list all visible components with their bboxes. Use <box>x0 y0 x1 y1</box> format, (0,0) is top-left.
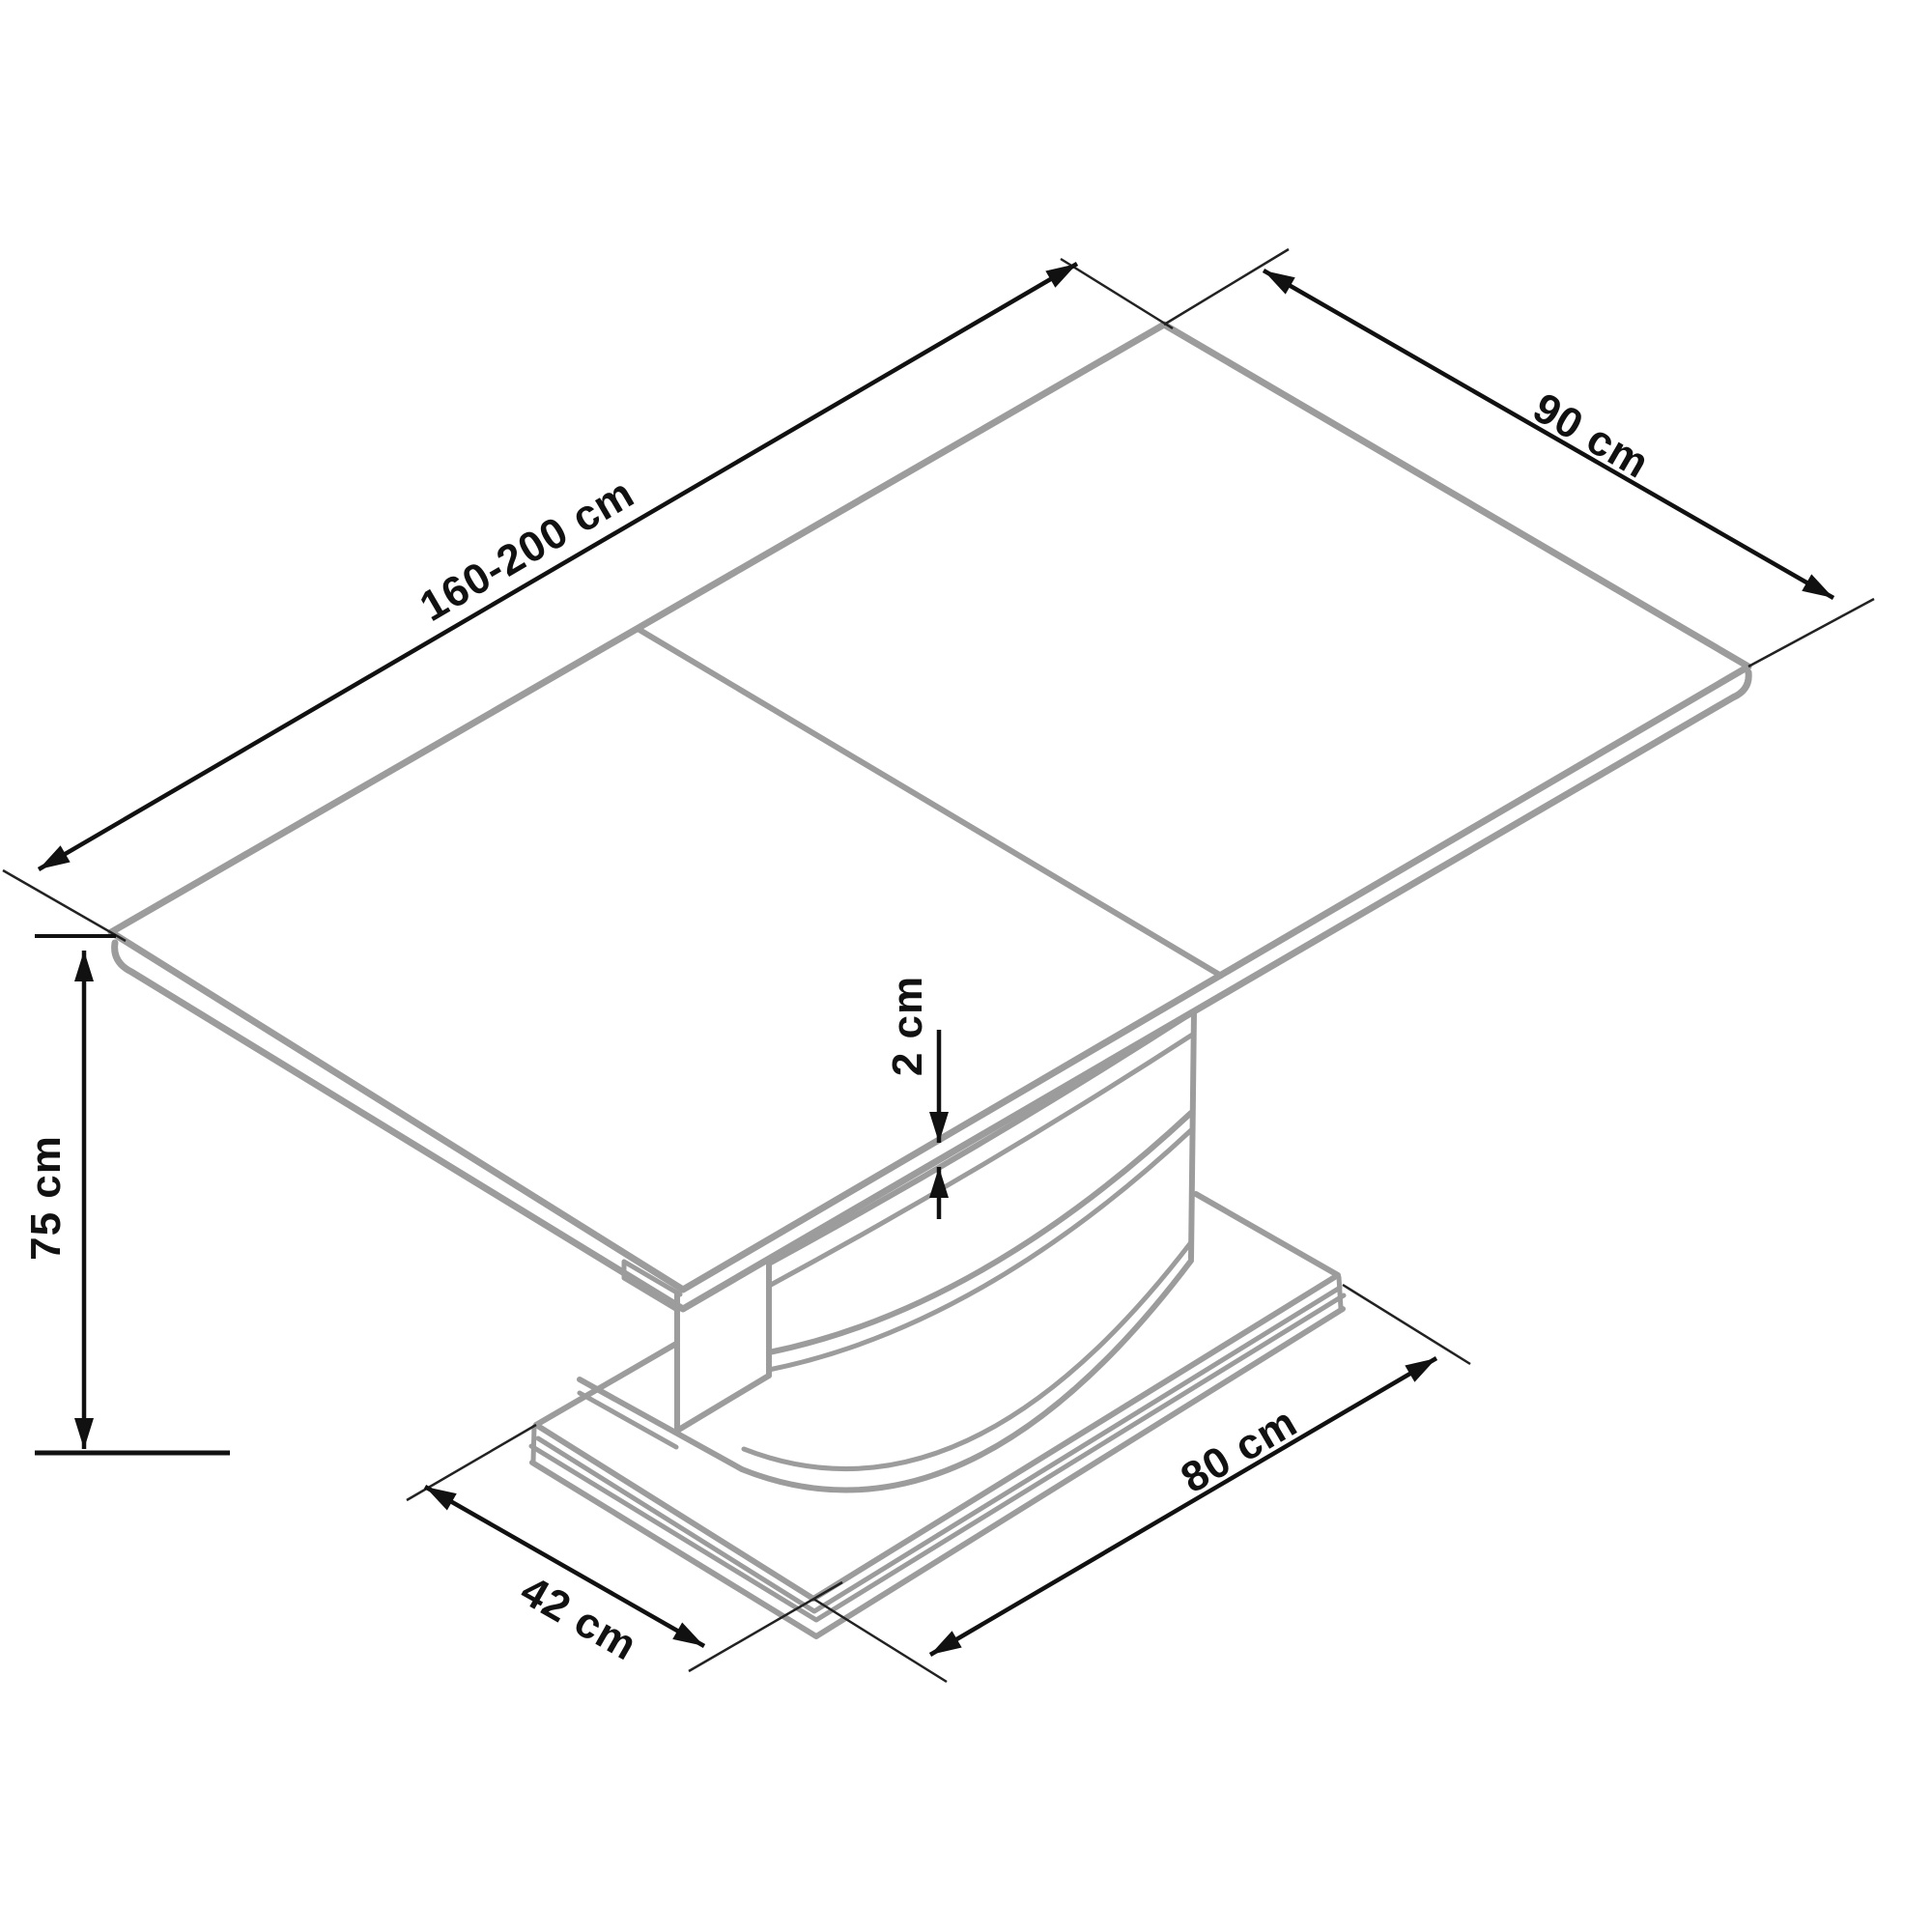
extension-line <box>1164 249 1289 325</box>
dimension-line-base-width <box>930 1358 1436 1655</box>
base-left-corner-edge <box>533 1427 534 1462</box>
curved-panel-top-band <box>771 1034 1194 1285</box>
extension-line <box>813 1599 947 1682</box>
dimension-label-length: 160-200 cm <box>412 469 642 631</box>
dimension-label-base-depth: 42 cm <box>513 1567 645 1670</box>
tabletop-extension-seam <box>639 630 1221 976</box>
column-foot-bottom-edge <box>580 1393 676 1447</box>
diagram-canvas: 160-200 cm 90 cm 75 cm 2 cm 42 cm 80 cm <box>0 0 1932 1932</box>
tabletop-edge-thickness <box>115 672 1749 1309</box>
column-left-face-bottom-edge <box>677 1376 769 1431</box>
tabletop-top-face <box>111 325 1748 1290</box>
dimension-label-width: 90 cm <box>1525 384 1658 488</box>
dimension-line-length <box>39 264 1077 869</box>
table-dimension-diagram: 160-200 cm 90 cm 75 cm 2 cm 42 cm 80 cm <box>0 0 1932 1932</box>
base-right-corner-edge <box>1339 1277 1341 1308</box>
column-foot-top-edge <box>580 1379 742 1469</box>
pedestal-base <box>531 1194 1344 1636</box>
dimension-label-base-width: 80 cm <box>1173 1398 1305 1502</box>
extension-line <box>1748 599 1874 667</box>
curved-panel-right-edge <box>1191 1011 1194 1259</box>
dimension-label-top-thickness: 2 cm <box>884 976 931 1076</box>
dimension-label-height: 75 cm <box>22 1135 70 1261</box>
dimension-length: 160-200 cm <box>3 259 1173 941</box>
extension-line <box>689 1582 842 1671</box>
extension-line <box>1343 1285 1470 1364</box>
extension-line <box>1061 259 1173 328</box>
dimension-width: 90 cm <box>1164 249 1874 667</box>
extension-line <box>3 870 126 941</box>
tabletop <box>111 325 1748 1310</box>
